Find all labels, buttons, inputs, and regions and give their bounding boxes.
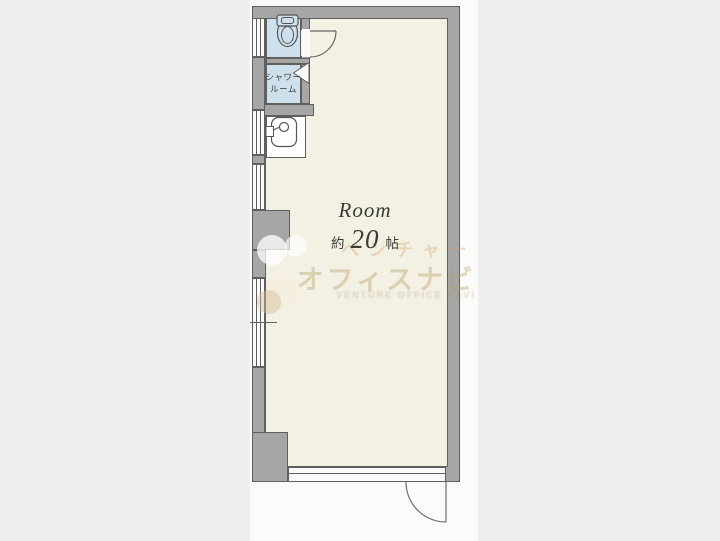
bottom-left-step-wall	[252, 432, 288, 482]
room-size: 約 20 帖	[300, 224, 430, 255]
window-2	[252, 110, 265, 155]
room-name: Room	[300, 198, 430, 223]
window-1	[252, 18, 265, 57]
threshold-line	[289, 473, 445, 474]
entrance-threshold	[288, 467, 446, 482]
page: { "room": { "name": "Room", "size_prefix…	[0, 0, 720, 541]
room-size-value: 20	[351, 224, 380, 255]
shower-label-line2: ルーム	[264, 83, 303, 95]
shower-label-line1: シャワー	[264, 71, 303, 83]
room-label: Room 約 20 帖	[300, 198, 430, 255]
toilet-room	[266, 18, 301, 58]
left-wall-segment-4	[252, 367, 265, 434]
shower-room-label: シャワー ルーム	[264, 71, 303, 95]
sink-room	[266, 116, 306, 158]
left-wall-segment-2	[252, 155, 265, 164]
window-division-tick	[250, 322, 277, 323]
toilet-doorway	[302, 29, 310, 57]
window-3	[252, 164, 265, 210]
room-size-prefix: 約	[331, 232, 345, 252]
left-wall-segment-3	[252, 250, 266, 278]
left-pillar	[252, 210, 290, 250]
room-size-unit: 帖	[386, 232, 400, 252]
